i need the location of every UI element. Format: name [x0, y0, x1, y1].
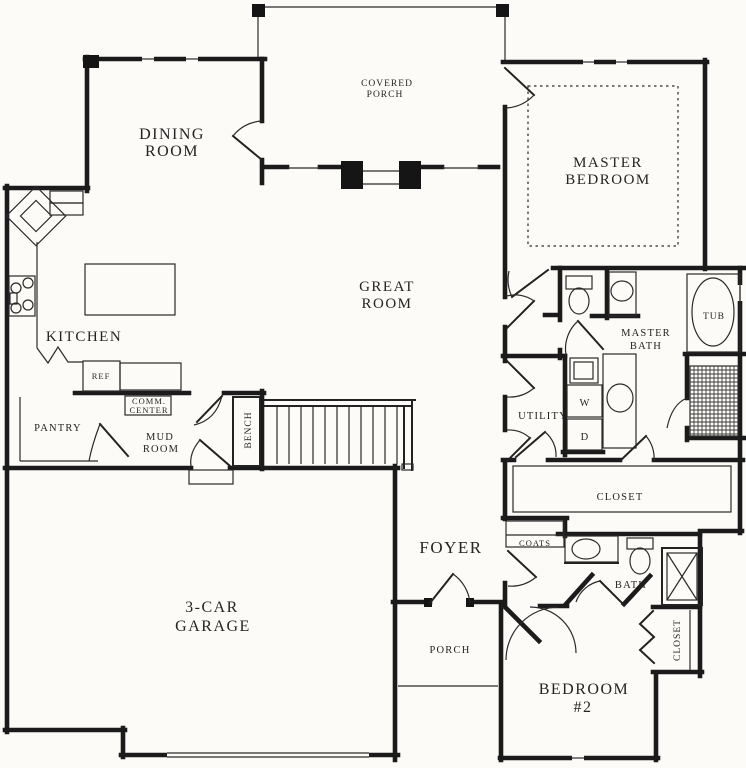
- label-master-bedroom: MASTER: [573, 155, 643, 171]
- master-toilet: [566, 276, 592, 314]
- label-bench: BENCH: [244, 411, 254, 448]
- label-master-bath-2: BATH: [630, 341, 662, 352]
- great-room-columns: [287, 161, 480, 189]
- label-great-room: GREAT: [359, 279, 415, 295]
- column-icon: [341, 161, 363, 189]
- kitchen-island: [85, 264, 175, 315]
- label-ref: REF: [92, 371, 111, 381]
- garage-step: [189, 470, 233, 484]
- master-sink-2: [603, 354, 636, 448]
- label-master-closet: CLOSET: [597, 492, 644, 503]
- front-door: [430, 574, 453, 603]
- master-sink-1: [609, 272, 636, 316]
- covered-porch-outline: [252, 4, 509, 60]
- label-tub: TUB: [703, 312, 725, 322]
- bath-toilet: [627, 538, 653, 574]
- porch-post-icon: [496, 4, 509, 17]
- label-dining-room: DINING: [139, 126, 205, 143]
- label-utility: UTILITY: [518, 411, 568, 422]
- floor-plan-drawing: COVERED PORCH DINING ROOM MASTER BEDROOM…: [0, 0, 746, 768]
- porch-post-icon: [252, 4, 265, 17]
- label-bath: BATH: [615, 580, 647, 591]
- label-dining-room-2: ROOM: [145, 143, 199, 160]
- wall-break-icon: [37, 347, 83, 363]
- master-vanity: [570, 358, 598, 383]
- column-icon: [399, 161, 421, 189]
- label-master-bedroom-2: BEDROOM: [565, 172, 651, 188]
- fireplace: [6, 186, 65, 245]
- label-dryer: D: [581, 432, 590, 443]
- label-garage-2: GARAGE: [175, 618, 251, 635]
- bifold-door-icon: [640, 611, 654, 663]
- label-bedroom-2-num: #2: [574, 699, 593, 716]
- stove: [9, 276, 35, 316]
- label-garage: 3-CAR: [185, 599, 239, 616]
- label-pantry: PANTRY: [34, 423, 82, 434]
- label-covered-porch-2: PORCH: [367, 90, 404, 100]
- bath-sink: [565, 536, 618, 563]
- label-comm-center-2: CENTER: [129, 405, 168, 415]
- shower-stall: [662, 548, 702, 605]
- staircase: [265, 400, 415, 470]
- label-great-room-2: ROOM: [361, 296, 412, 312]
- label-master-bath: MASTER: [621, 328, 671, 339]
- label-mud-room-2: ROOM: [143, 444, 179, 455]
- master-closet-outline: [513, 466, 731, 512]
- label-bedroom-2-closet: CLOSET: [673, 619, 683, 661]
- pantry-door: [100, 424, 128, 456]
- label-mud-room: MUD: [146, 432, 174, 443]
- master-shower-tile: [690, 366, 738, 436]
- label-washer: W: [579, 398, 590, 409]
- label-covered-porch: COVERED: [361, 79, 413, 89]
- label-porch: PORCH: [429, 645, 470, 656]
- floor-plan: COVERED PORCH DINING ROOM MASTER BEDROOM…: [0, 0, 746, 768]
- label-foyer: FOYER: [419, 538, 482, 557]
- label-bedroom-2: BEDROOM: [539, 681, 630, 698]
- label-coats: COATS: [519, 538, 551, 548]
- kitchen-counter: [120, 363, 181, 390]
- label-kitchen: KITCHEN: [46, 329, 122, 345]
